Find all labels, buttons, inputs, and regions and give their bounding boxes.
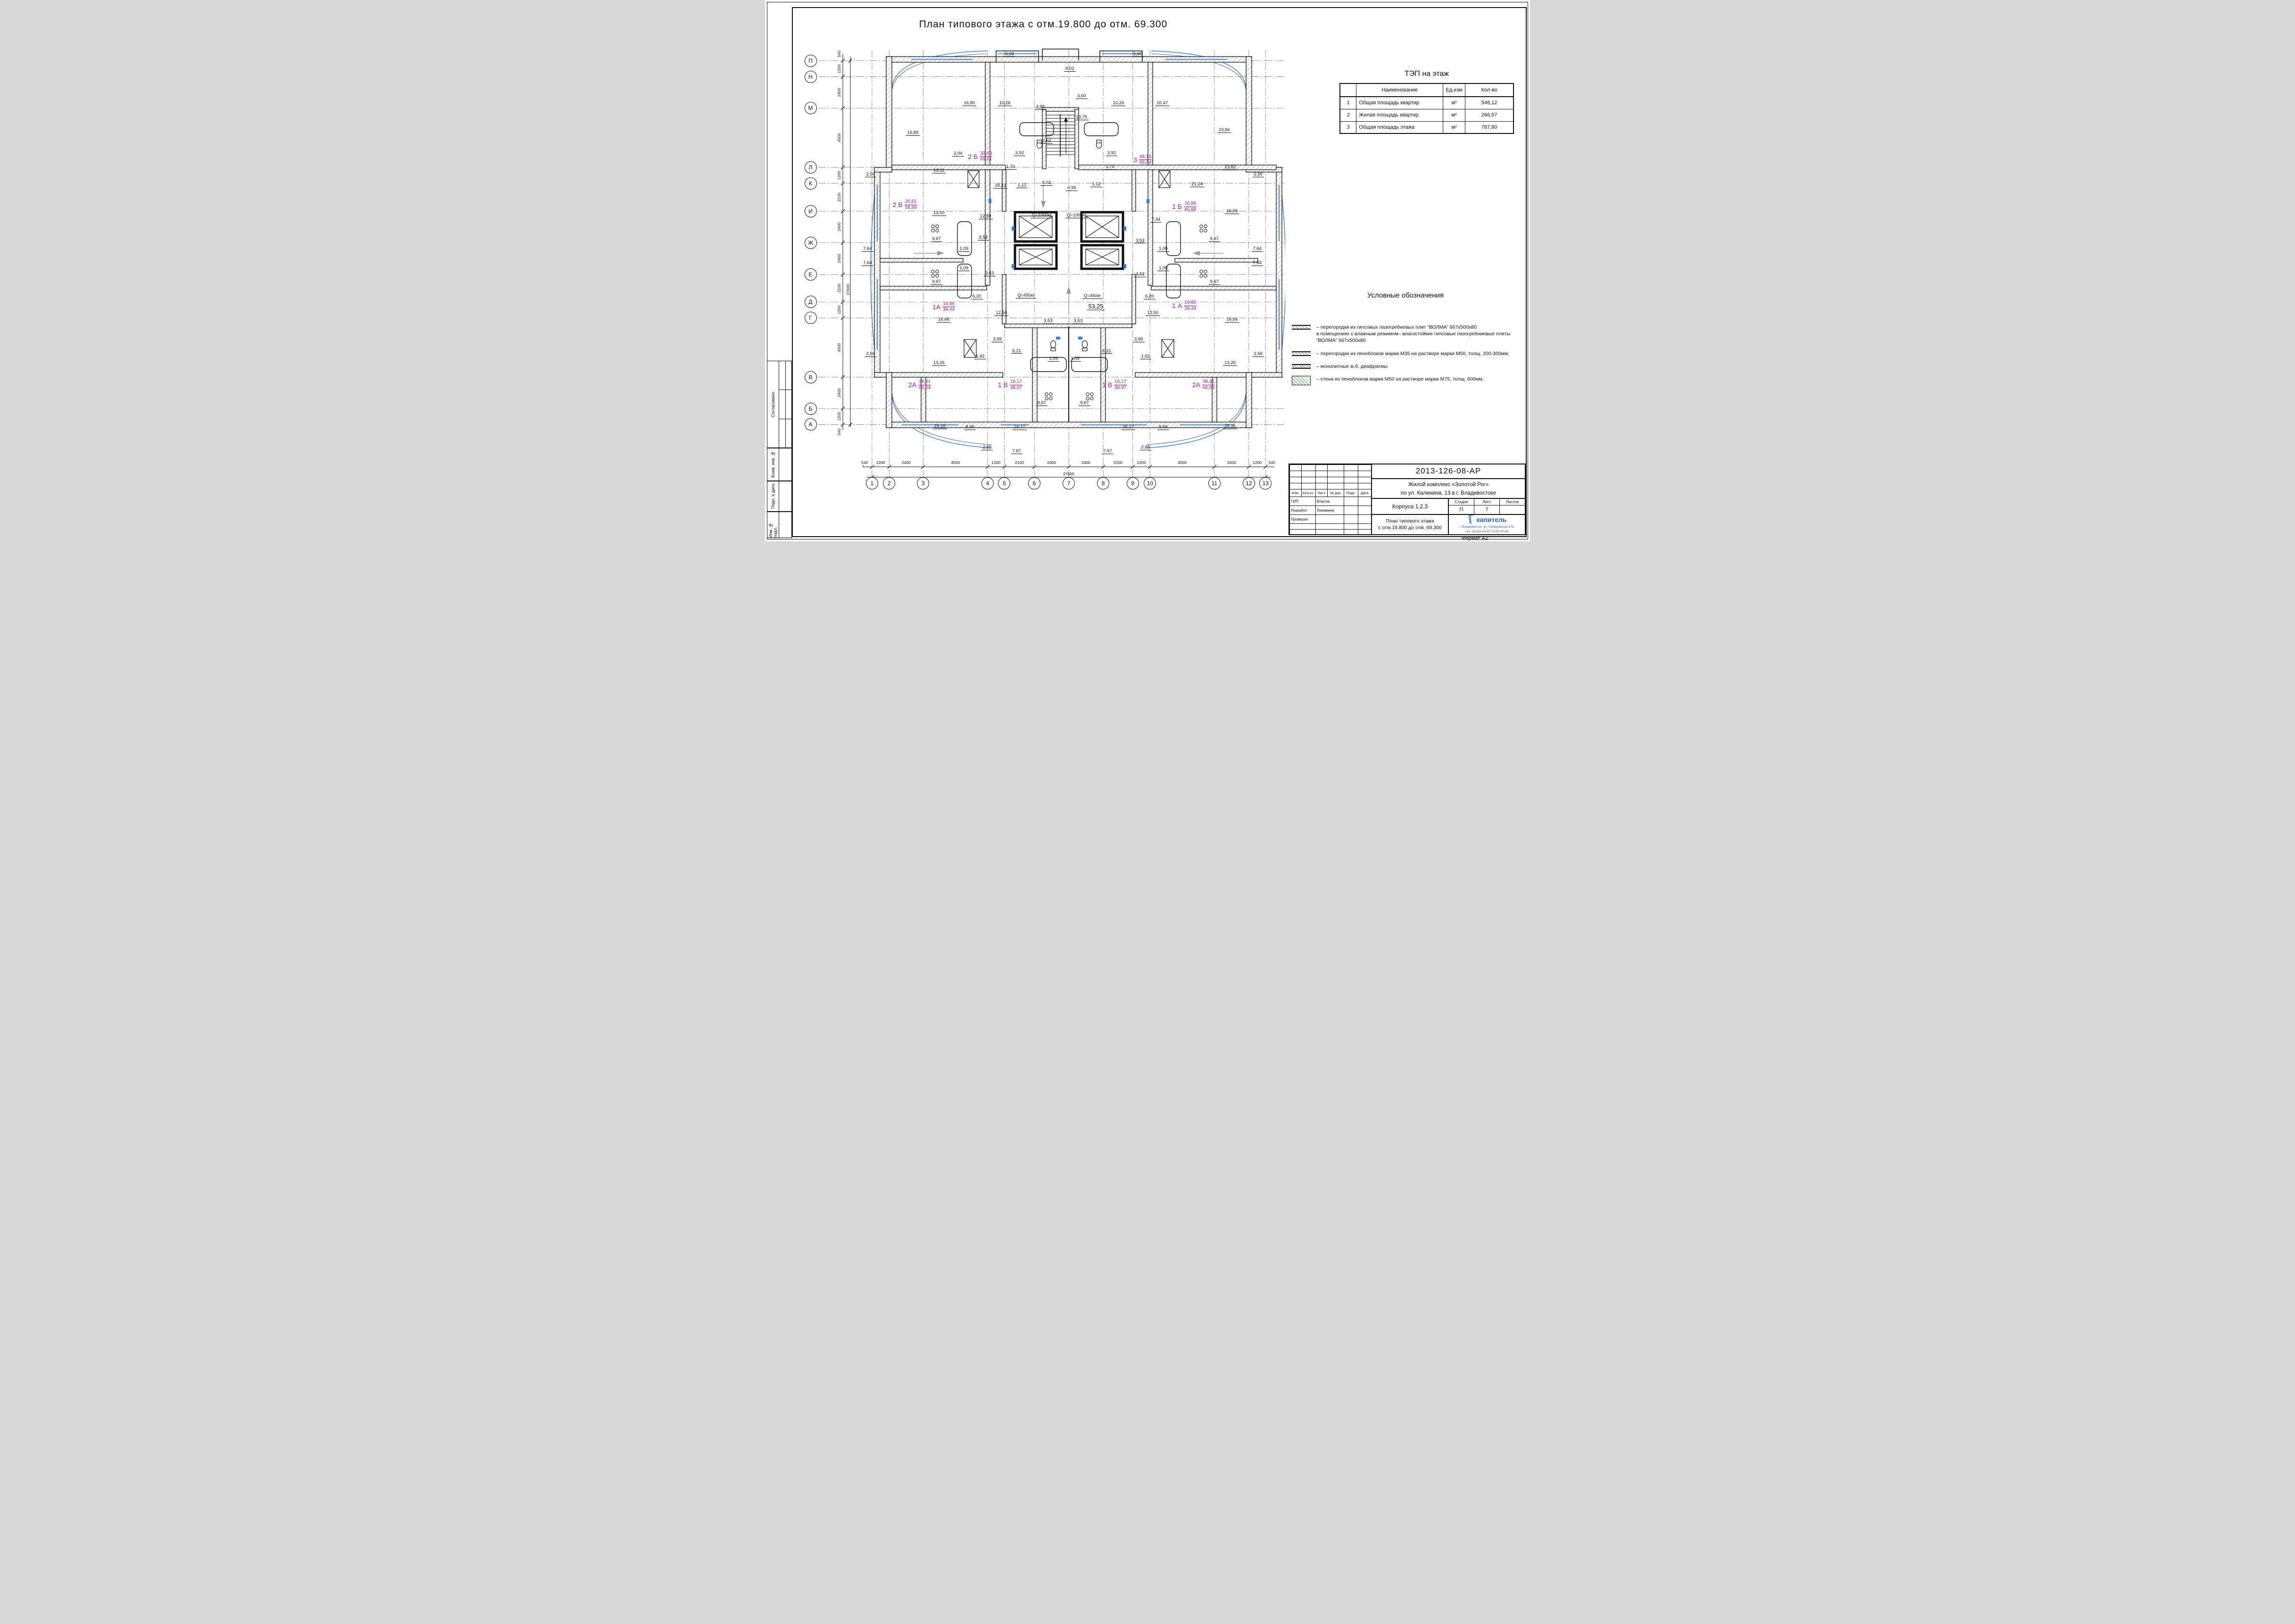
dim-label: 25,15 bbox=[1223, 424, 1237, 429]
capitel-logo-icon bbox=[1467, 515, 1475, 524]
dim-label: 2,56 bbox=[865, 172, 877, 177]
dim-label: 3,92 bbox=[1014, 151, 1026, 156]
dim-label: 1,70 bbox=[1104, 165, 1116, 170]
dim-label: Q=450кг bbox=[1082, 294, 1102, 299]
axis-bubble-Д: Д bbox=[805, 296, 817, 308]
dim-label: 7,67 bbox=[1011, 449, 1023, 454]
axis-bubble-П: П bbox=[805, 55, 817, 67]
logo-text: капитель bbox=[1477, 516, 1507, 523]
apartment-type: 2А bbox=[908, 381, 916, 389]
hatch-foam-icon bbox=[1292, 351, 1311, 356]
legend-item-text: – перегородки из пеноблоков марки М35 на… bbox=[1316, 350, 1509, 357]
staircase bbox=[1046, 114, 1075, 157]
apartment-total-area: 38,97 bbox=[1114, 385, 1127, 391]
axis-bubble-4: 4 bbox=[981, 477, 994, 489]
dim-segment-left: 2400 bbox=[837, 223, 841, 232]
tep-cell-value: 787,80 bbox=[1465, 121, 1513, 133]
axis-bubble-13: 13 bbox=[1259, 477, 1272, 489]
axis-bubble-Н: Н bbox=[805, 71, 817, 83]
elevators bbox=[1015, 212, 1123, 269]
dim-label: 9,67 bbox=[1209, 280, 1221, 285]
apartment-type: 2 В bbox=[893, 201, 903, 208]
walls bbox=[874, 57, 1282, 428]
tep-cell-unit: м² bbox=[1443, 97, 1465, 109]
apartment-label: 1 Б16,6640,68 bbox=[1172, 201, 1197, 212]
dim-total-left: 27600 bbox=[846, 284, 850, 295]
apartment-label: 2 В26,6158,89 bbox=[893, 199, 917, 210]
drawing-sheet: Согласовано Взам. инв. № Подп. и дата Ин… bbox=[765, 0, 1530, 541]
dim-label: 2,65 bbox=[1140, 445, 1152, 450]
dim-segment-bottom: 2400 bbox=[1081, 460, 1090, 465]
dim-label: 7,64 bbox=[1251, 261, 1263, 266]
tep-header-row: Наименование Ед.изм Кол-во bbox=[1340, 83, 1513, 97]
axis-bubble-Ж: Ж bbox=[805, 237, 817, 249]
tep-table: Наименование Ед.изм Кол-во 1Общая площад… bbox=[1339, 83, 1514, 134]
dim-segment-bottom: 1200 bbox=[1137, 460, 1146, 465]
signature-sign bbox=[1344, 515, 1358, 524]
dim-edge-bottom: 540 bbox=[861, 460, 868, 465]
dim-label: 2,56 bbox=[1252, 352, 1264, 357]
dim-label: 7,44 bbox=[1150, 217, 1162, 223]
apartment-living-area: 32,69 bbox=[980, 151, 992, 157]
project-name: Жилой комплекс «Золотой Рог» по ул. Кали… bbox=[1372, 479, 1525, 499]
dim-label: Q=1000кг bbox=[1031, 213, 1053, 218]
stage-values: П 7 bbox=[1449, 505, 1525, 514]
stage-header: СтадияЛистЛистов bbox=[1449, 499, 1525, 505]
dim-label: 13,26 bbox=[1223, 361, 1237, 366]
axis-bubble-3: 3 bbox=[917, 477, 929, 489]
dim-edge-left: 540 bbox=[837, 50, 841, 57]
dim-segment-bottom: 2400 bbox=[1047, 460, 1056, 465]
side-stamp-soglasovano: Согласовано bbox=[767, 361, 792, 448]
signature-date bbox=[1358, 506, 1372, 515]
object-name: Корпуса 1,2,3 bbox=[1372, 499, 1448, 515]
axis-bubble-2: 2 bbox=[883, 477, 895, 489]
dim-segment-left: 4500 bbox=[837, 343, 841, 352]
dim-label: 15,89 bbox=[906, 131, 920, 136]
axis-bubble-9: 9 bbox=[1127, 477, 1139, 489]
apartment-label: 1 А16,6639,44 bbox=[1172, 300, 1197, 311]
dim-label: 16,66 bbox=[937, 317, 951, 323]
side-stamp-label: Инв. № подл. bbox=[767, 512, 779, 538]
tep-block: ТЭП на этаж Наименование Ед.изм Кол-во 1… bbox=[1339, 70, 1514, 134]
dim-label: 3,99 bbox=[992, 337, 1004, 342]
dim-segment-bottom: 2100 bbox=[1015, 460, 1024, 465]
apartment-total-area: 58,89 bbox=[905, 205, 917, 211]
axis-bubble-5: 5 bbox=[998, 477, 1010, 489]
dim-label: 3,92 bbox=[1106, 151, 1118, 156]
dim-label: 1,70 bbox=[1005, 165, 1017, 170]
dim-segment-bottom: 1200 bbox=[1253, 460, 1262, 465]
side-stamp-grid bbox=[779, 361, 791, 447]
tep-cell-name: Общая площадь этажа bbox=[1356, 121, 1443, 133]
dim-label: 1,09 bbox=[1157, 247, 1169, 252]
dim-label: 10,26 bbox=[998, 101, 1012, 106]
apartment-living-area: 16,17 bbox=[1114, 379, 1127, 385]
dim-label: 6,21 bbox=[1011, 349, 1023, 354]
dim-label: 13,82 bbox=[1223, 165, 1237, 170]
dim-label: 6,20 bbox=[1144, 294, 1156, 299]
dim-segment-bottom: 1200 bbox=[876, 460, 885, 465]
sheets-total bbox=[1500, 505, 1525, 514]
legend-item: – стена из пеноблоков марки М50 на раств… bbox=[1292, 376, 1519, 385]
hatch-monolith-icon bbox=[1292, 364, 1311, 369]
signature-row: РазработЛомакина bbox=[1290, 506, 1372, 515]
axis-bubble-М: М bbox=[805, 102, 817, 114]
dim-label: 16,80 bbox=[963, 101, 977, 106]
dim-segment-bottom: 2400 bbox=[1227, 460, 1236, 465]
dim-label: 12,50 bbox=[1146, 311, 1160, 316]
signature-name: Власов bbox=[1316, 497, 1344, 506]
dim-segment-bottom: 4500 bbox=[1178, 460, 1187, 465]
dim-label: 3,53 bbox=[1134, 272, 1146, 277]
tep-cell-name: Общая площадь квартир bbox=[1356, 97, 1443, 109]
apartment-areas: 16,6639,44 bbox=[1184, 300, 1197, 311]
title-block-signatures: Изм.Кол.уч. Лист№ док. Подп.Дата ГИПВлас… bbox=[1289, 464, 1372, 534]
apartment-living-area: 16,66 bbox=[1184, 300, 1197, 306]
apartment-total-area: 69,61 bbox=[980, 157, 992, 162]
door-markers bbox=[989, 199, 1149, 340]
axis-bubble-А: А bbox=[805, 418, 817, 431]
dim-label: 25,15 bbox=[933, 424, 947, 429]
dim-segment-left: 2100 bbox=[837, 284, 841, 293]
legend-item-text: – стена из пеноблоков марки М50 на раств… bbox=[1316, 376, 1484, 382]
apartment-total-area: 88,84 bbox=[1139, 160, 1152, 166]
dim-label: 12,89 bbox=[979, 214, 993, 219]
apartment-areas: 16,6639,44 bbox=[942, 301, 955, 313]
dim-label: 16,66 bbox=[1225, 209, 1239, 214]
side-stamp-label: Подп. и дата bbox=[767, 481, 779, 511]
dim-label: 1,62 bbox=[1140, 354, 1152, 359]
dim-edge-left: 540 bbox=[837, 429, 841, 435]
signature-sign bbox=[1344, 506, 1358, 515]
tep-row: 1Общая площадь квартирм²548,12 bbox=[1340, 97, 1513, 109]
dim-label: 8,56 bbox=[964, 425, 976, 430]
logo-address: г. Владивосток, ул. Хабаровская 27в тел.… bbox=[1460, 525, 1514, 534]
legend-item: – перегородки из пеноблоков марки М35 на… bbox=[1292, 350, 1519, 357]
apartment-type: 1 В bbox=[998, 381, 1008, 389]
apartment-total-area: 39,44 bbox=[1184, 306, 1197, 312]
apartment-total-area: 38,97 bbox=[1010, 385, 1023, 391]
apartment-living-area: 16,17 bbox=[1010, 379, 1023, 385]
dim-label: 10,26 bbox=[1112, 101, 1126, 106]
apartment-living-area: 38,41 bbox=[918, 379, 931, 385]
dim-label: 53,25 bbox=[1087, 304, 1105, 310]
page-title: План типового этажа с отм.19.800 до отм.… bbox=[855, 19, 1232, 30]
dim-segment-left: 1200 bbox=[837, 64, 841, 73]
doc-number: 2013-126-08-АР bbox=[1372, 464, 1525, 479]
dim-label: 1,09 bbox=[1157, 266, 1169, 271]
dim-segment-left: 2400 bbox=[837, 389, 841, 398]
dim-label: 3,53 bbox=[1134, 239, 1146, 244]
hatch-gypsum-icon bbox=[1292, 325, 1311, 330]
dim-segment-left: 1200 bbox=[837, 306, 841, 315]
signature-header-row: Изм.Кол.уч. Лист№ док. Подп.Дата bbox=[1290, 489, 1372, 497]
axis-bubble-7: 7 bbox=[1063, 477, 1075, 489]
dim-label: 16,17 bbox=[1013, 425, 1027, 430]
axis-bubble-К: К bbox=[805, 177, 817, 190]
apartment-areas: 48,1388,84 bbox=[1139, 154, 1152, 166]
dim-total-bottom: 27600 bbox=[1063, 472, 1074, 476]
dim-label: Q=1000кг bbox=[1065, 213, 1088, 218]
hatch-wall-600-icon bbox=[1292, 376, 1311, 385]
dim-label: 2,04 bbox=[952, 151, 964, 157]
apartment-living-area: 26,61 bbox=[905, 199, 917, 205]
dim-label: 3,53 bbox=[1073, 319, 1084, 324]
apartment-label: 1 В16,1738,97 bbox=[998, 379, 1023, 390]
apartment-type: 1 В bbox=[1102, 381, 1112, 389]
dim-label: 3,53 bbox=[984, 271, 996, 276]
apartment-areas: 16,1738,97 bbox=[1010, 379, 1023, 390]
dim-label: 16,17 bbox=[1121, 425, 1135, 430]
signature-role: Разработ bbox=[1290, 506, 1316, 515]
dim-segment-bottom: 2100 bbox=[1114, 460, 1123, 465]
side-stamp-podp: Подп. и дата bbox=[767, 481, 792, 512]
dim-label: 12,50 bbox=[994, 311, 1008, 316]
dim-label: 2,56 bbox=[1252, 172, 1264, 177]
stage-value: П bbox=[1449, 505, 1474, 514]
signature-name: Ломакина bbox=[1316, 506, 1344, 515]
dim-segment-bottom: 4500 bbox=[951, 460, 960, 465]
apartment-total-area: 40,68 bbox=[1184, 207, 1197, 213]
apartment-type: 1 Б bbox=[1172, 203, 1182, 210]
apartment-areas: 16,1738,97 bbox=[1114, 379, 1127, 390]
dim-label: 2,65 bbox=[981, 445, 993, 450]
tep-cell-value: 266,57 bbox=[1465, 109, 1513, 121]
tep-cell-value: 548,12 bbox=[1465, 97, 1513, 109]
signature-role: ГИП bbox=[1290, 497, 1316, 506]
stair-arrow bbox=[1064, 117, 1068, 122]
axis-bubble-Б: Б bbox=[805, 403, 817, 415]
tep-cell-n: 3 bbox=[1340, 121, 1356, 133]
sheet-number: 7 bbox=[1474, 505, 1500, 514]
axis-bubble-Г: Г bbox=[805, 312, 817, 324]
dim-label: 6,21 bbox=[1101, 349, 1113, 354]
tep-row: 3Общая площадь этажам²787,80 bbox=[1340, 121, 1513, 133]
dim-label: 13,26 bbox=[932, 361, 946, 366]
apartment-label: 1А16,6639,44 bbox=[932, 301, 955, 313]
side-stamp-inv: Инв. № подл. bbox=[767, 512, 792, 538]
apartment-living-area: 16,66 bbox=[942, 301, 955, 307]
dim-label: 8,56 bbox=[1157, 425, 1169, 430]
side-stamp-label: Взам. инв. № bbox=[767, 448, 779, 481]
dim-label: 5,68 bbox=[1004, 52, 1016, 57]
dim-label: 2,56 bbox=[865, 352, 877, 357]
dim-label: 0,95 bbox=[1066, 186, 1078, 191]
dim-label: 1,09 bbox=[1069, 356, 1081, 362]
axis-bubble-В: В bbox=[805, 371, 817, 383]
tep-title: ТЭП на этаж bbox=[1339, 70, 1514, 78]
dim-label: 7,67 bbox=[1102, 449, 1114, 454]
dim-label: 3,53 bbox=[977, 235, 989, 240]
apartment-total-area: 66,64 bbox=[918, 385, 931, 391]
dim-segment-bottom: 2400 bbox=[902, 460, 911, 465]
title-block: Изм.Кол.уч. Лист№ док. Подп.Дата ГИПВлас… bbox=[1289, 464, 1526, 535]
apartment-label: 348,1388,84 bbox=[1133, 154, 1152, 166]
apartment-total-area: 66,64 bbox=[1202, 385, 1215, 391]
apartment-type: 1А bbox=[932, 303, 940, 311]
axis-bubble-11: 11 bbox=[1208, 477, 1221, 489]
dim-segment-left: 2400 bbox=[837, 88, 841, 97]
apartment-areas: 32,6969,61 bbox=[980, 151, 992, 162]
dim-label: 4,99 bbox=[1034, 105, 1046, 110]
signature-date bbox=[1358, 515, 1372, 524]
dim-label: 3,60 bbox=[1076, 94, 1088, 99]
dim-label: 23,84 bbox=[1217, 128, 1231, 133]
signature-sign bbox=[1344, 497, 1358, 506]
apartment-type: 1 А bbox=[1172, 302, 1182, 309]
legend-item-text: – перегородки из гипсовых пазогребневых … bbox=[1316, 324, 1510, 344]
apartment-type: 2 Б bbox=[968, 153, 978, 160]
dim-label: 21,24 bbox=[1190, 182, 1204, 187]
apartment-label: 2А38,4166,64 bbox=[908, 379, 931, 390]
dim-segment-left: 2400 bbox=[837, 254, 841, 263]
apartment-living-area: 38,41 bbox=[1202, 379, 1215, 385]
dim-label: 6,02 bbox=[1041, 181, 1053, 186]
apartment-label: 1 В16,1738,97 bbox=[1102, 379, 1127, 390]
apartment-total-area: 39,44 bbox=[942, 307, 955, 313]
apartment-areas: 38,4166,64 bbox=[918, 379, 931, 390]
dim-label: 9,67 bbox=[1079, 401, 1090, 406]
dim-label: 7,64 bbox=[862, 261, 873, 266]
tep-cell-unit: м² bbox=[1443, 109, 1465, 121]
legend-block: Условные обозначения – перегородки из ги… bbox=[1292, 291, 1519, 391]
axis-bubble-И: И bbox=[805, 205, 817, 217]
dim-label: 16,66 bbox=[1225, 317, 1239, 323]
side-stamp-label: Согласовано bbox=[767, 361, 779, 447]
dim-label: 1,62 bbox=[974, 354, 986, 359]
dim-label: 13,75 bbox=[1074, 115, 1089, 120]
apartment-type: 2А bbox=[1192, 381, 1200, 389]
dim-label: 7,64 bbox=[862, 247, 873, 252]
tep-cell-n: 1 bbox=[1340, 97, 1356, 109]
sheet-name: План типового этажа с отм.19.800 до отм.… bbox=[1372, 515, 1448, 534]
axis-bubble-Е: Е bbox=[805, 268, 817, 281]
apartment-areas: 26,6158,89 bbox=[905, 199, 917, 210]
dim-label: 8,02 bbox=[1064, 66, 1076, 72]
dim-label: 6,20 bbox=[971, 294, 983, 299]
dim-label: 13,11 bbox=[932, 168, 946, 174]
plan-drawing bbox=[793, 43, 1285, 499]
apartment-living-area: 16,66 bbox=[1184, 201, 1197, 207]
dim-label: 2,62 bbox=[1041, 139, 1053, 144]
dim-label: 5,68 bbox=[1132, 52, 1144, 57]
dim-segment-left: 1200 bbox=[837, 171, 841, 180]
dim-label: 1,12 bbox=[1016, 183, 1028, 188]
axis-bubble-6: 6 bbox=[1028, 477, 1040, 489]
dim-label: 10,47 bbox=[1155, 101, 1169, 106]
dim-label: 7,64 bbox=[1251, 247, 1263, 252]
dim-label: 1,09 bbox=[958, 266, 970, 271]
axis-bubble-10: 10 bbox=[1144, 477, 1156, 489]
side-stamp-vzam: Взам. инв. № bbox=[767, 448, 792, 481]
signature-date bbox=[1358, 497, 1372, 506]
dim-edge-bottom: 540 bbox=[1269, 460, 1275, 465]
dim-segment-bottom: 1200 bbox=[991, 460, 1000, 465]
apartment-label: 2 Б32,6969,61 bbox=[968, 151, 992, 162]
apartment-areas: 16,6640,68 bbox=[1184, 201, 1197, 212]
apartment-living-area: 48,13 bbox=[1139, 154, 1152, 160]
dim-label: 1,12 bbox=[1090, 182, 1102, 187]
legend-item: – монолитные ж.б. диафрагмы bbox=[1292, 363, 1519, 370]
dim-label: 3,53 bbox=[1042, 319, 1054, 324]
legend-item: – перегородки из гипсовых пазогребневых … bbox=[1292, 324, 1519, 344]
dim-segment-left: 4500 bbox=[837, 133, 841, 142]
tep-cell-n: 2 bbox=[1340, 109, 1356, 121]
dim-label: 9,67 bbox=[1036, 401, 1048, 406]
signature-role: Проверил bbox=[1290, 515, 1316, 524]
dim-segment-left: 1200 bbox=[837, 412, 841, 421]
dim-label: 1,09 bbox=[1048, 356, 1059, 362]
axis-bubble-12: 12 bbox=[1243, 477, 1255, 489]
tep-row: 2Жилая площадь квартирм²266,57 bbox=[1340, 109, 1513, 121]
plan-area: 12345678910111213ПНМЛКИЖЕДГВБА1200240045… bbox=[793, 43, 1285, 499]
signature-row: ГИПВласов bbox=[1290, 497, 1372, 506]
dim-label: 18,22 bbox=[993, 184, 1007, 189]
axis-bubble-1: 1 bbox=[866, 477, 878, 489]
dim-segment-left: 2100 bbox=[837, 193, 841, 202]
format-label: Формат А2 bbox=[1435, 536, 1515, 541]
tep-cell-unit: м² bbox=[1443, 121, 1465, 133]
dim-label: 1,09 bbox=[958, 247, 970, 252]
axis-bubble-Л: Л bbox=[805, 161, 817, 174]
apartment-areas: 38,4166,64 bbox=[1202, 379, 1215, 390]
axis-bubble-8: 8 bbox=[1097, 477, 1109, 489]
apartment-type: 3 bbox=[1133, 156, 1137, 164]
dim-label: 13,50 bbox=[932, 211, 946, 216]
signature-name bbox=[1316, 515, 1344, 524]
dim-label: 9,67 bbox=[931, 280, 942, 285]
dim-label: 3,99 bbox=[1133, 337, 1145, 342]
legend-item-text: – монолитные ж.б. диафрагмы bbox=[1316, 363, 1388, 370]
signature-row: Проверил bbox=[1290, 515, 1372, 524]
company-logo: капитель г. Владивосток, ул. Хабаровская… bbox=[1449, 515, 1525, 534]
legend-title: Условные обозначения bbox=[1292, 291, 1519, 299]
dim-label: 9,67 bbox=[1209, 237, 1221, 242]
tep-cell-name: Жилая площадь квартир bbox=[1356, 109, 1443, 121]
dim-label: Q=450кг bbox=[1016, 293, 1036, 298]
apartment-label: 2А38,4166,64 bbox=[1192, 379, 1215, 390]
dim-label: 9,67 bbox=[931, 237, 942, 242]
